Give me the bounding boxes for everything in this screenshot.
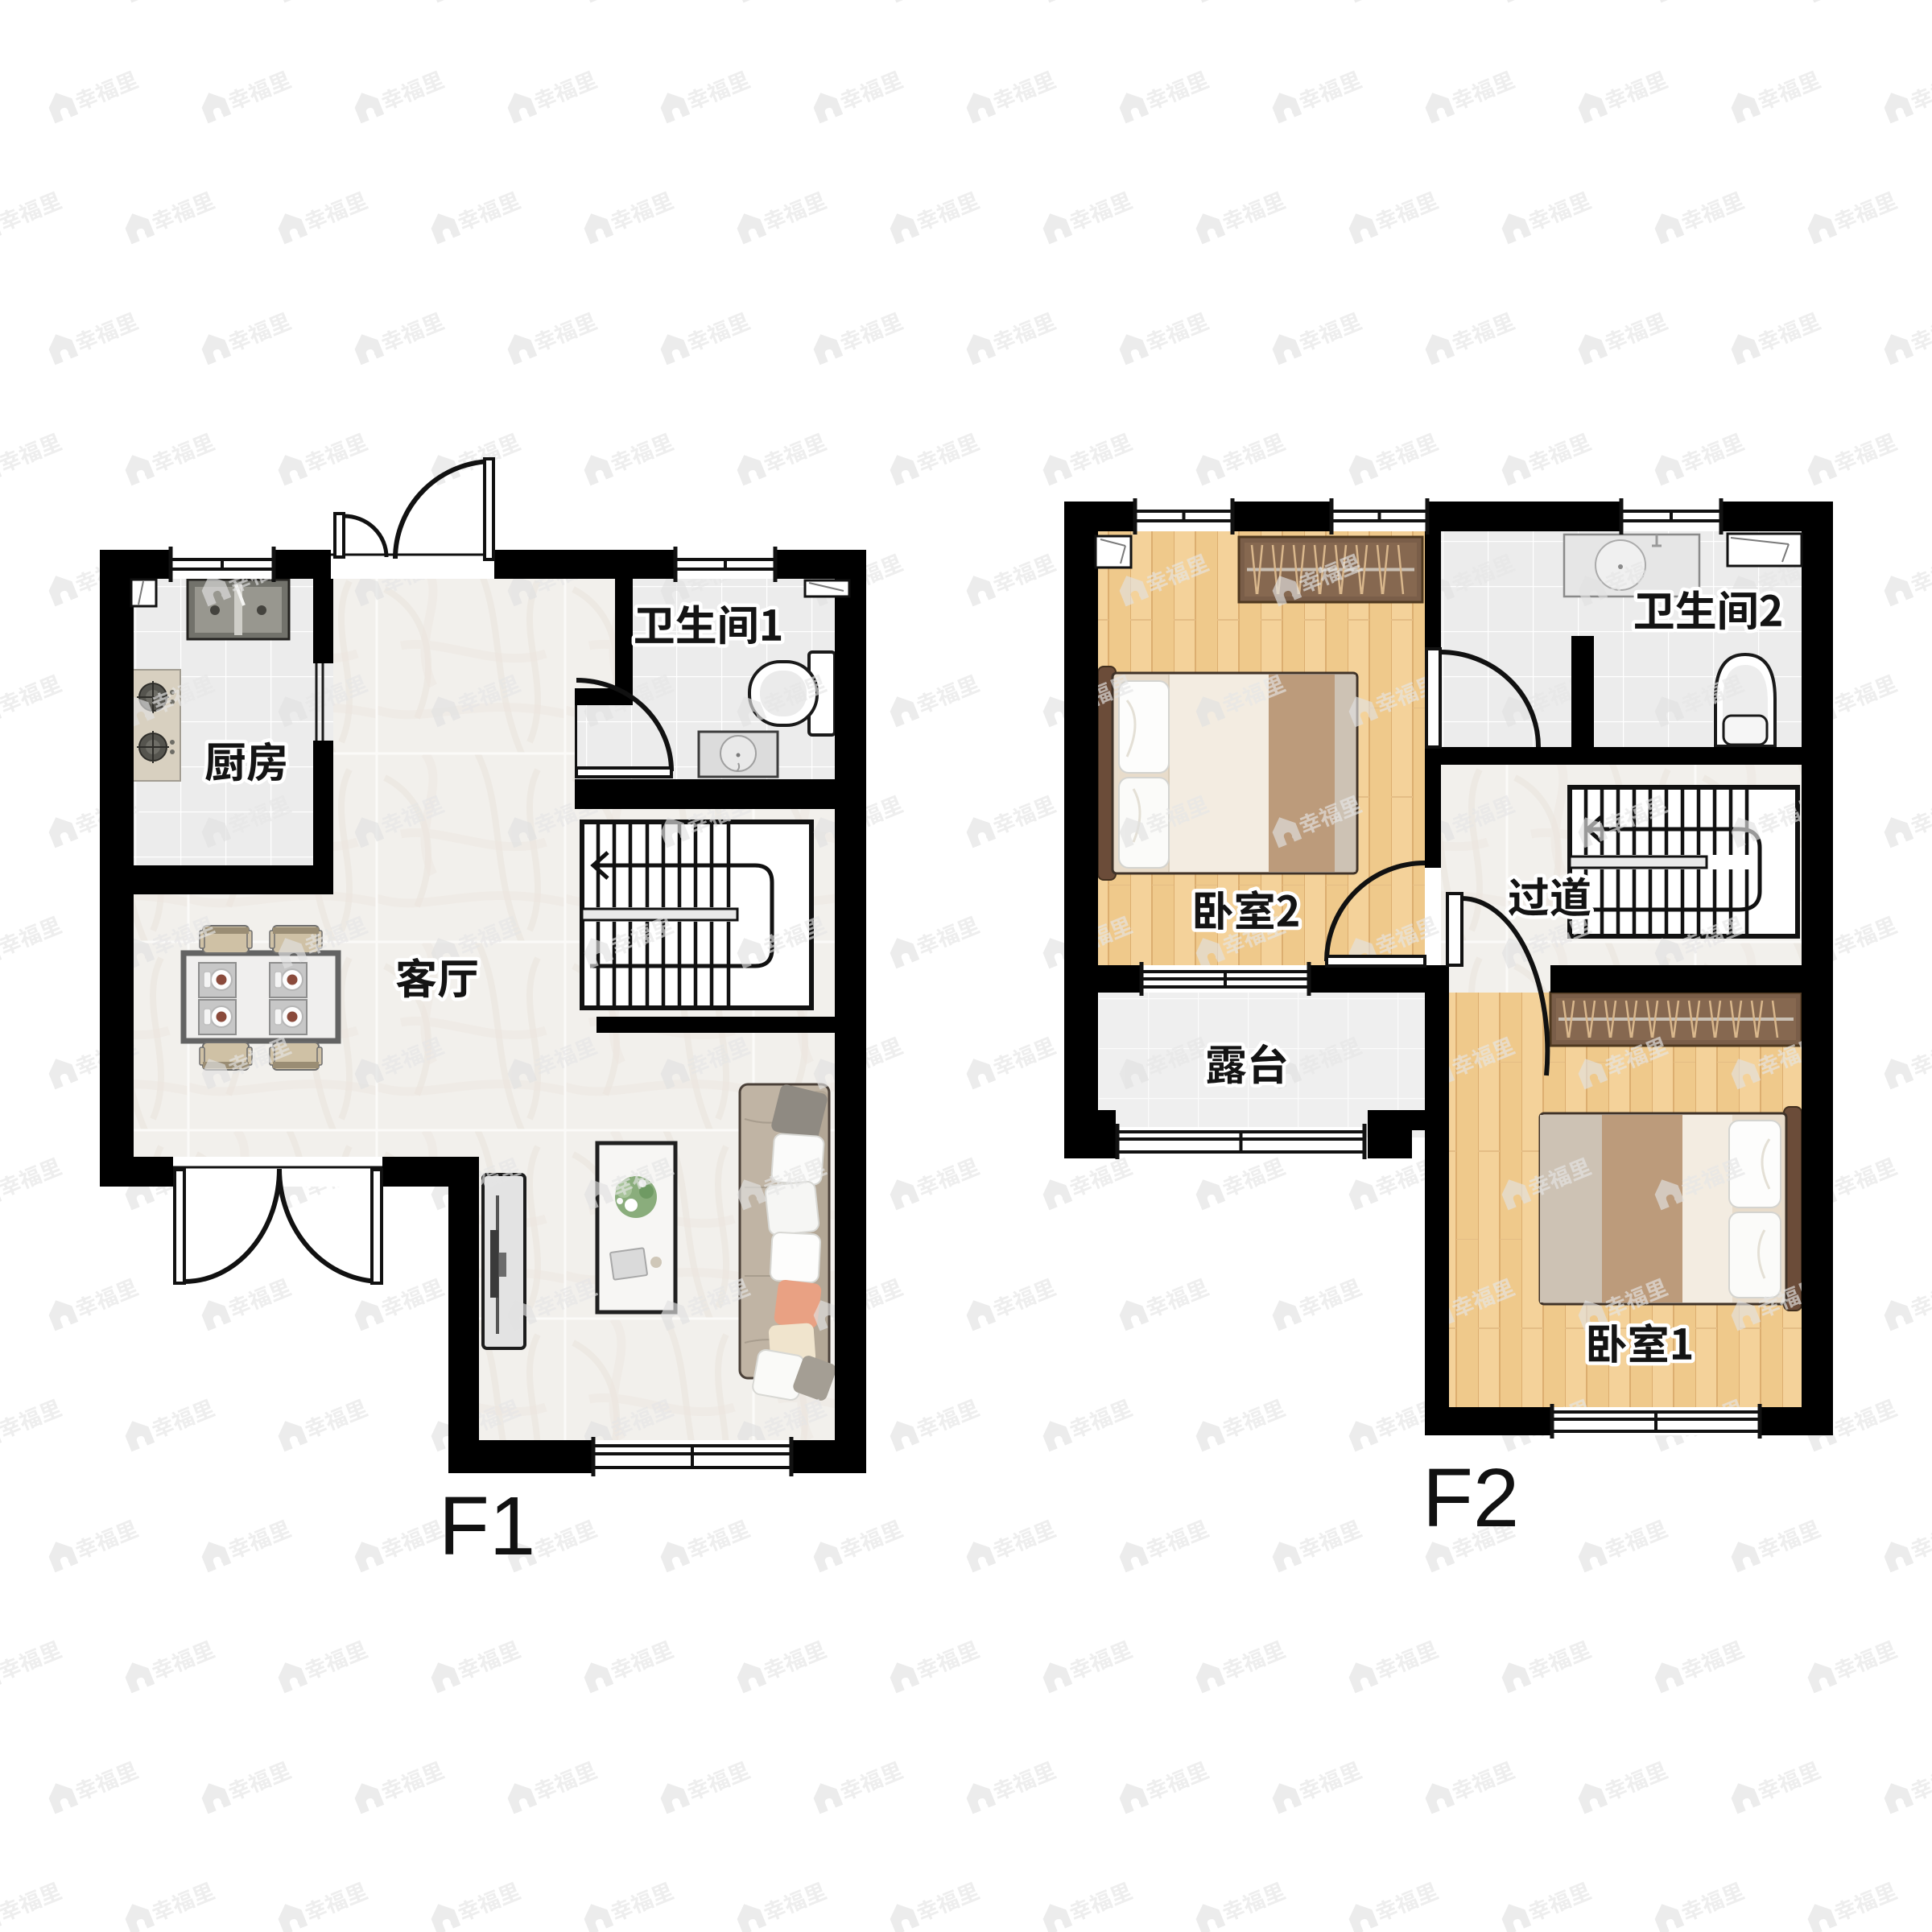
svg-text:F1: F1: [439, 1480, 535, 1572]
svg-text:F2: F2: [1422, 1451, 1519, 1544]
